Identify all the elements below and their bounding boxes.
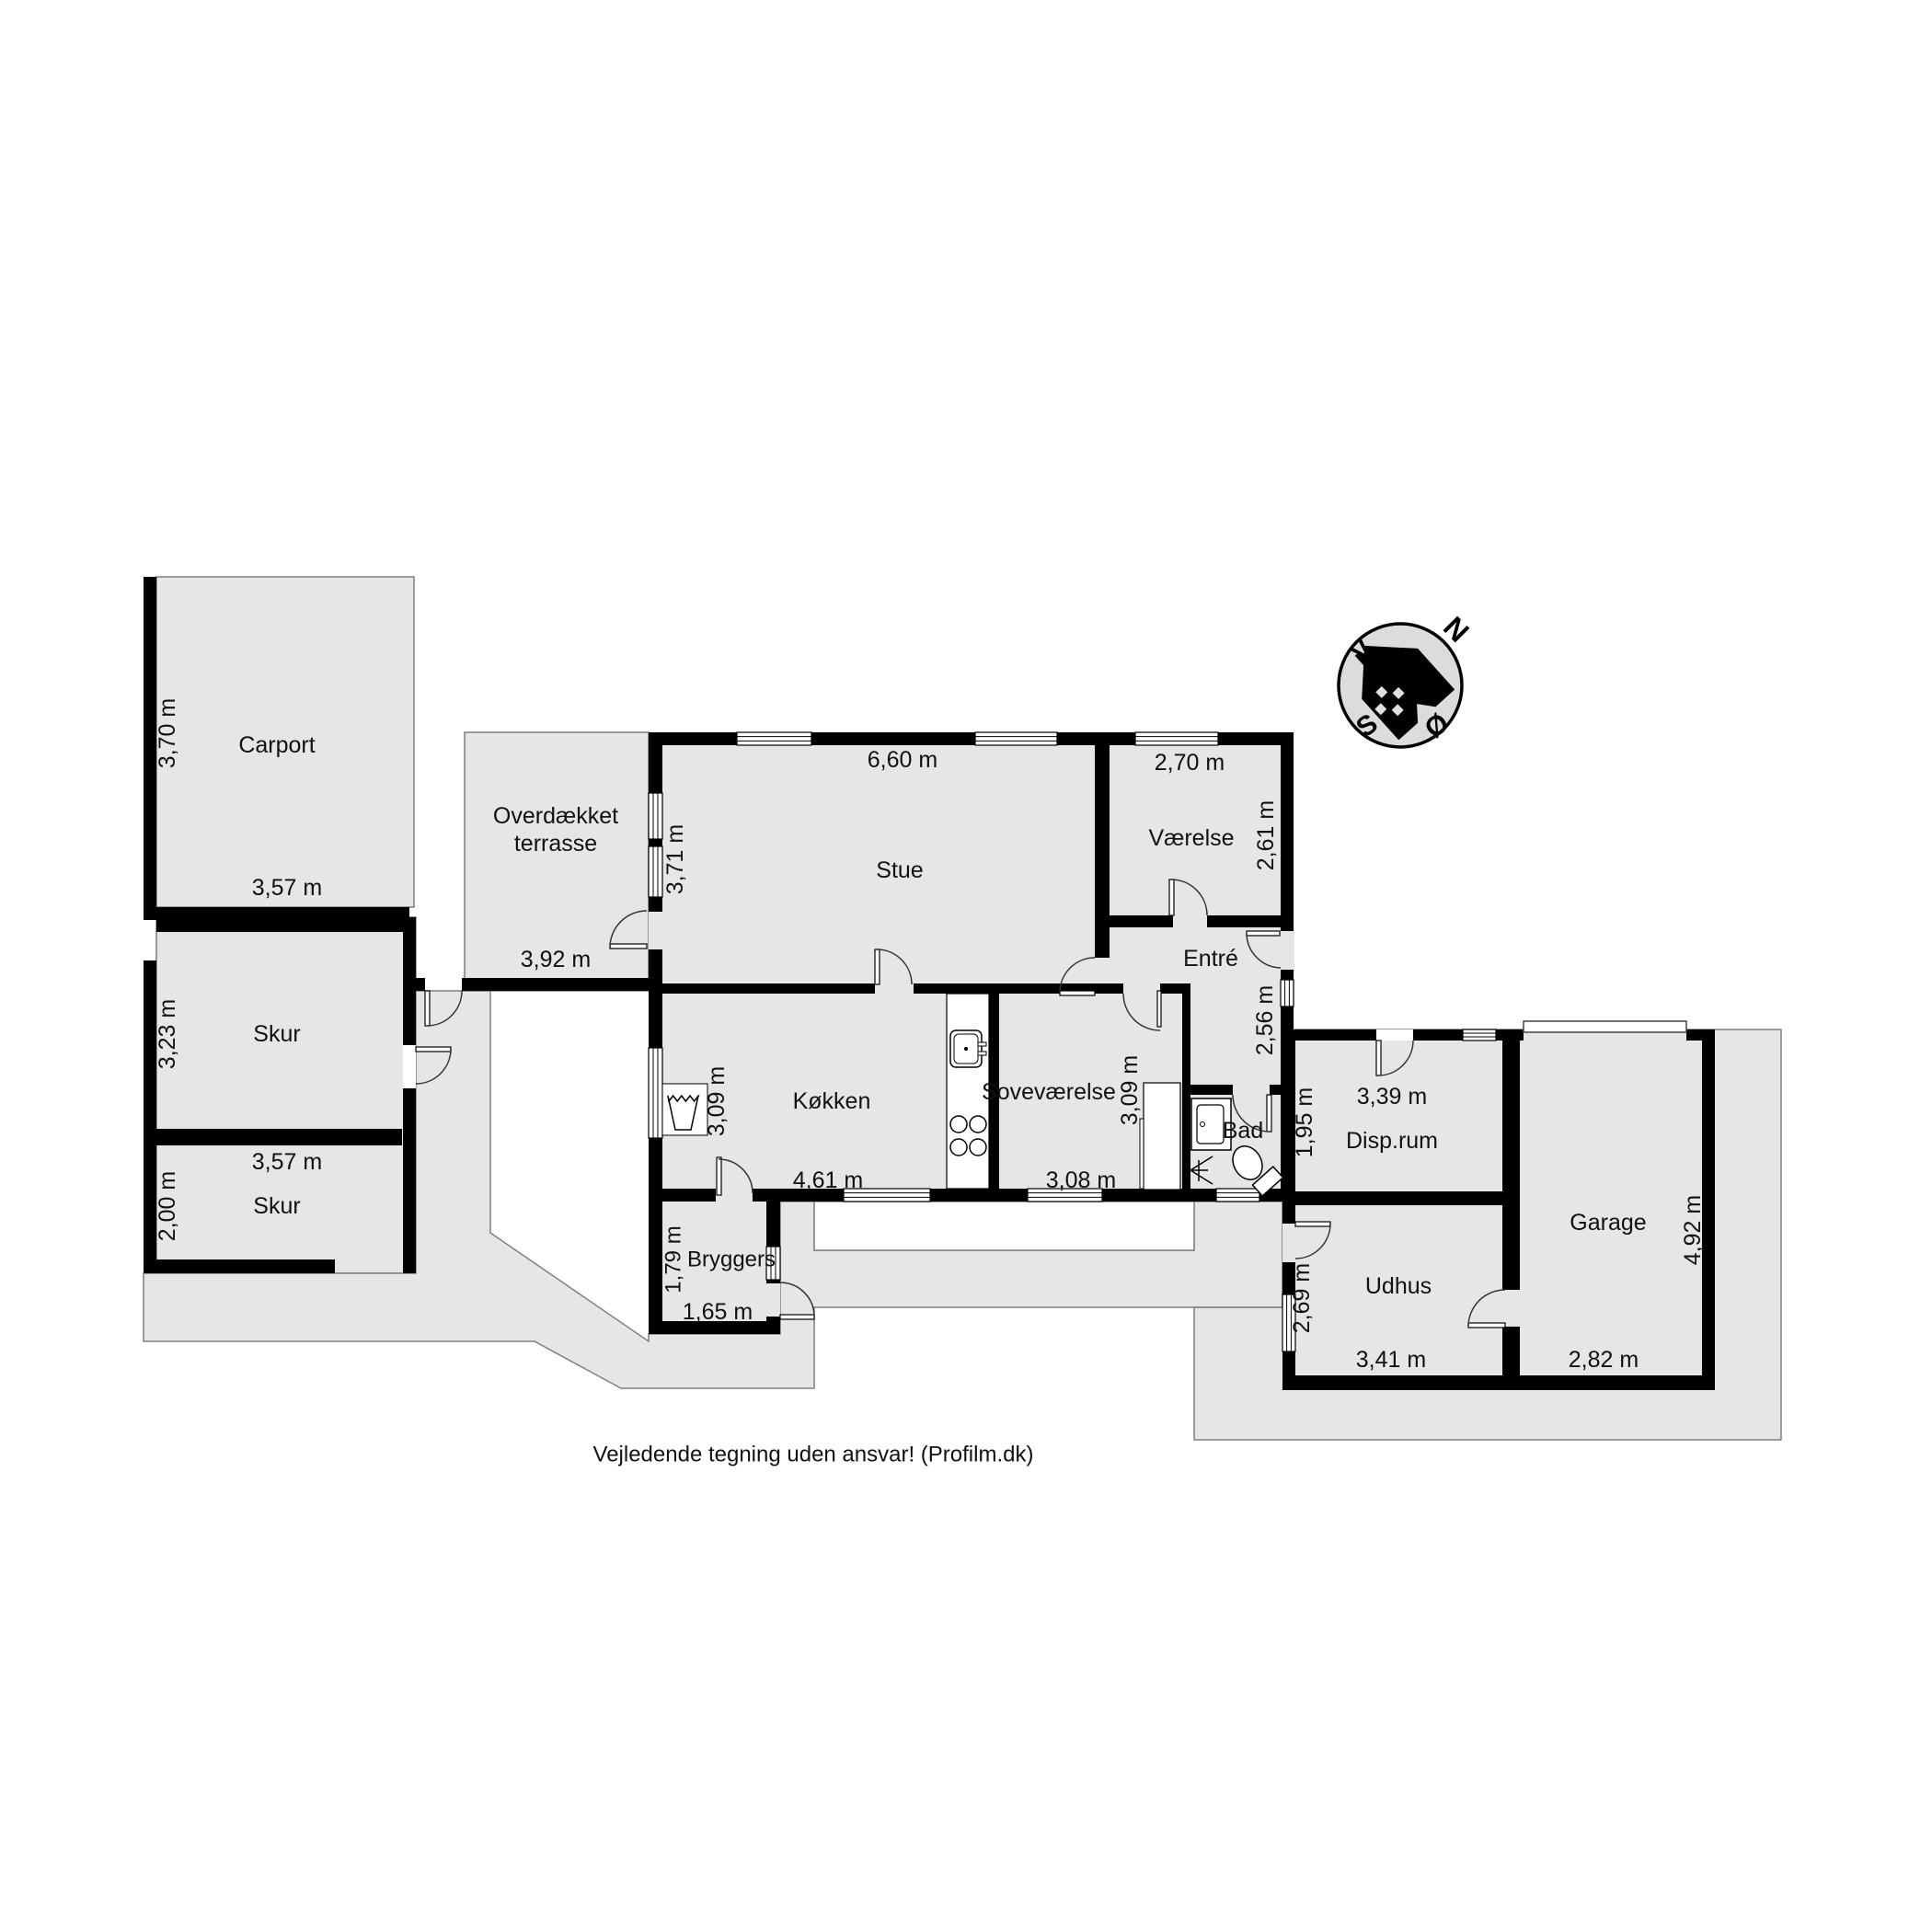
svg-text:3,41 m: 3,41 m <box>1356 1347 1426 1373</box>
svg-text:3,09 m: 3,09 m <box>1117 1055 1143 1125</box>
svg-text:2,82 m: 2,82 m <box>1569 1347 1639 1373</box>
svg-text:Overdækket: Overdækket <box>493 803 618 829</box>
svg-text:Garage: Garage <box>1570 1210 1646 1236</box>
svg-text:Carport: Carport <box>238 732 315 758</box>
svg-text:3,09 m: 3,09 m <box>704 1066 730 1136</box>
svg-text:1,79 m: 1,79 m <box>661 1225 686 1293</box>
svg-text:Bad: Bad <box>1223 1118 1263 1144</box>
svg-text:Soveværelse: Soveværelse <box>982 1079 1116 1105</box>
svg-text:2,00 m: 2,00 m <box>155 1171 180 1241</box>
svg-text:4,61 m: 4,61 m <box>793 1167 863 1193</box>
svg-text:3,39 m: 3,39 m <box>1357 1084 1427 1110</box>
svg-text:1,95 m: 1,95 m <box>1292 1087 1317 1157</box>
svg-text:terrasse: terrasse <box>514 831 597 857</box>
svg-text:Værelse: Værelse <box>1148 825 1234 851</box>
svg-text:2,69 m: 2,69 m <box>1289 1263 1315 1333</box>
svg-text:Bryggers: Bryggers <box>687 1248 776 1272</box>
svg-text:4,92 m: 4,92 m <box>1680 1195 1706 1265</box>
svg-text:Skur: Skur <box>253 1193 300 1219</box>
svg-text:3,70 m: 3,70 m <box>155 698 180 768</box>
svg-text:2,70 m: 2,70 m <box>1155 750 1225 776</box>
svg-text:Køkken: Køkken <box>793 1088 871 1114</box>
svg-text:Entré: Entré <box>1183 946 1238 972</box>
svg-text:2,56 m: 2,56 m <box>1252 985 1278 1055</box>
svg-text:Vejledende tegning uden ansvar: Vejledende tegning uden ansvar! (Profilm… <box>593 1443 1034 1467</box>
svg-text:6,60 m: 6,60 m <box>868 747 937 773</box>
svg-text:Skur: Skur <box>253 1021 300 1047</box>
svg-text:2,61 m: 2,61 m <box>1253 800 1279 870</box>
svg-text:3,71 m: 3,71 m <box>662 824 688 894</box>
svg-text:3,92 m: 3,92 m <box>521 947 591 972</box>
svg-text:3,23 m: 3,23 m <box>155 999 180 1069</box>
svg-text:Stue: Stue <box>876 857 923 883</box>
svg-text:Disp.rum: Disp.rum <box>1346 1128 1438 1154</box>
svg-text:1,65 m: 1,65 m <box>683 1299 753 1325</box>
svg-text:3,08 m: 3,08 m <box>1046 1167 1116 1193</box>
svg-text:3,57 m: 3,57 m <box>252 875 322 901</box>
svg-text:3,57 m: 3,57 m <box>252 1149 322 1175</box>
svg-text:Udhus: Udhus <box>1365 1273 1432 1299</box>
